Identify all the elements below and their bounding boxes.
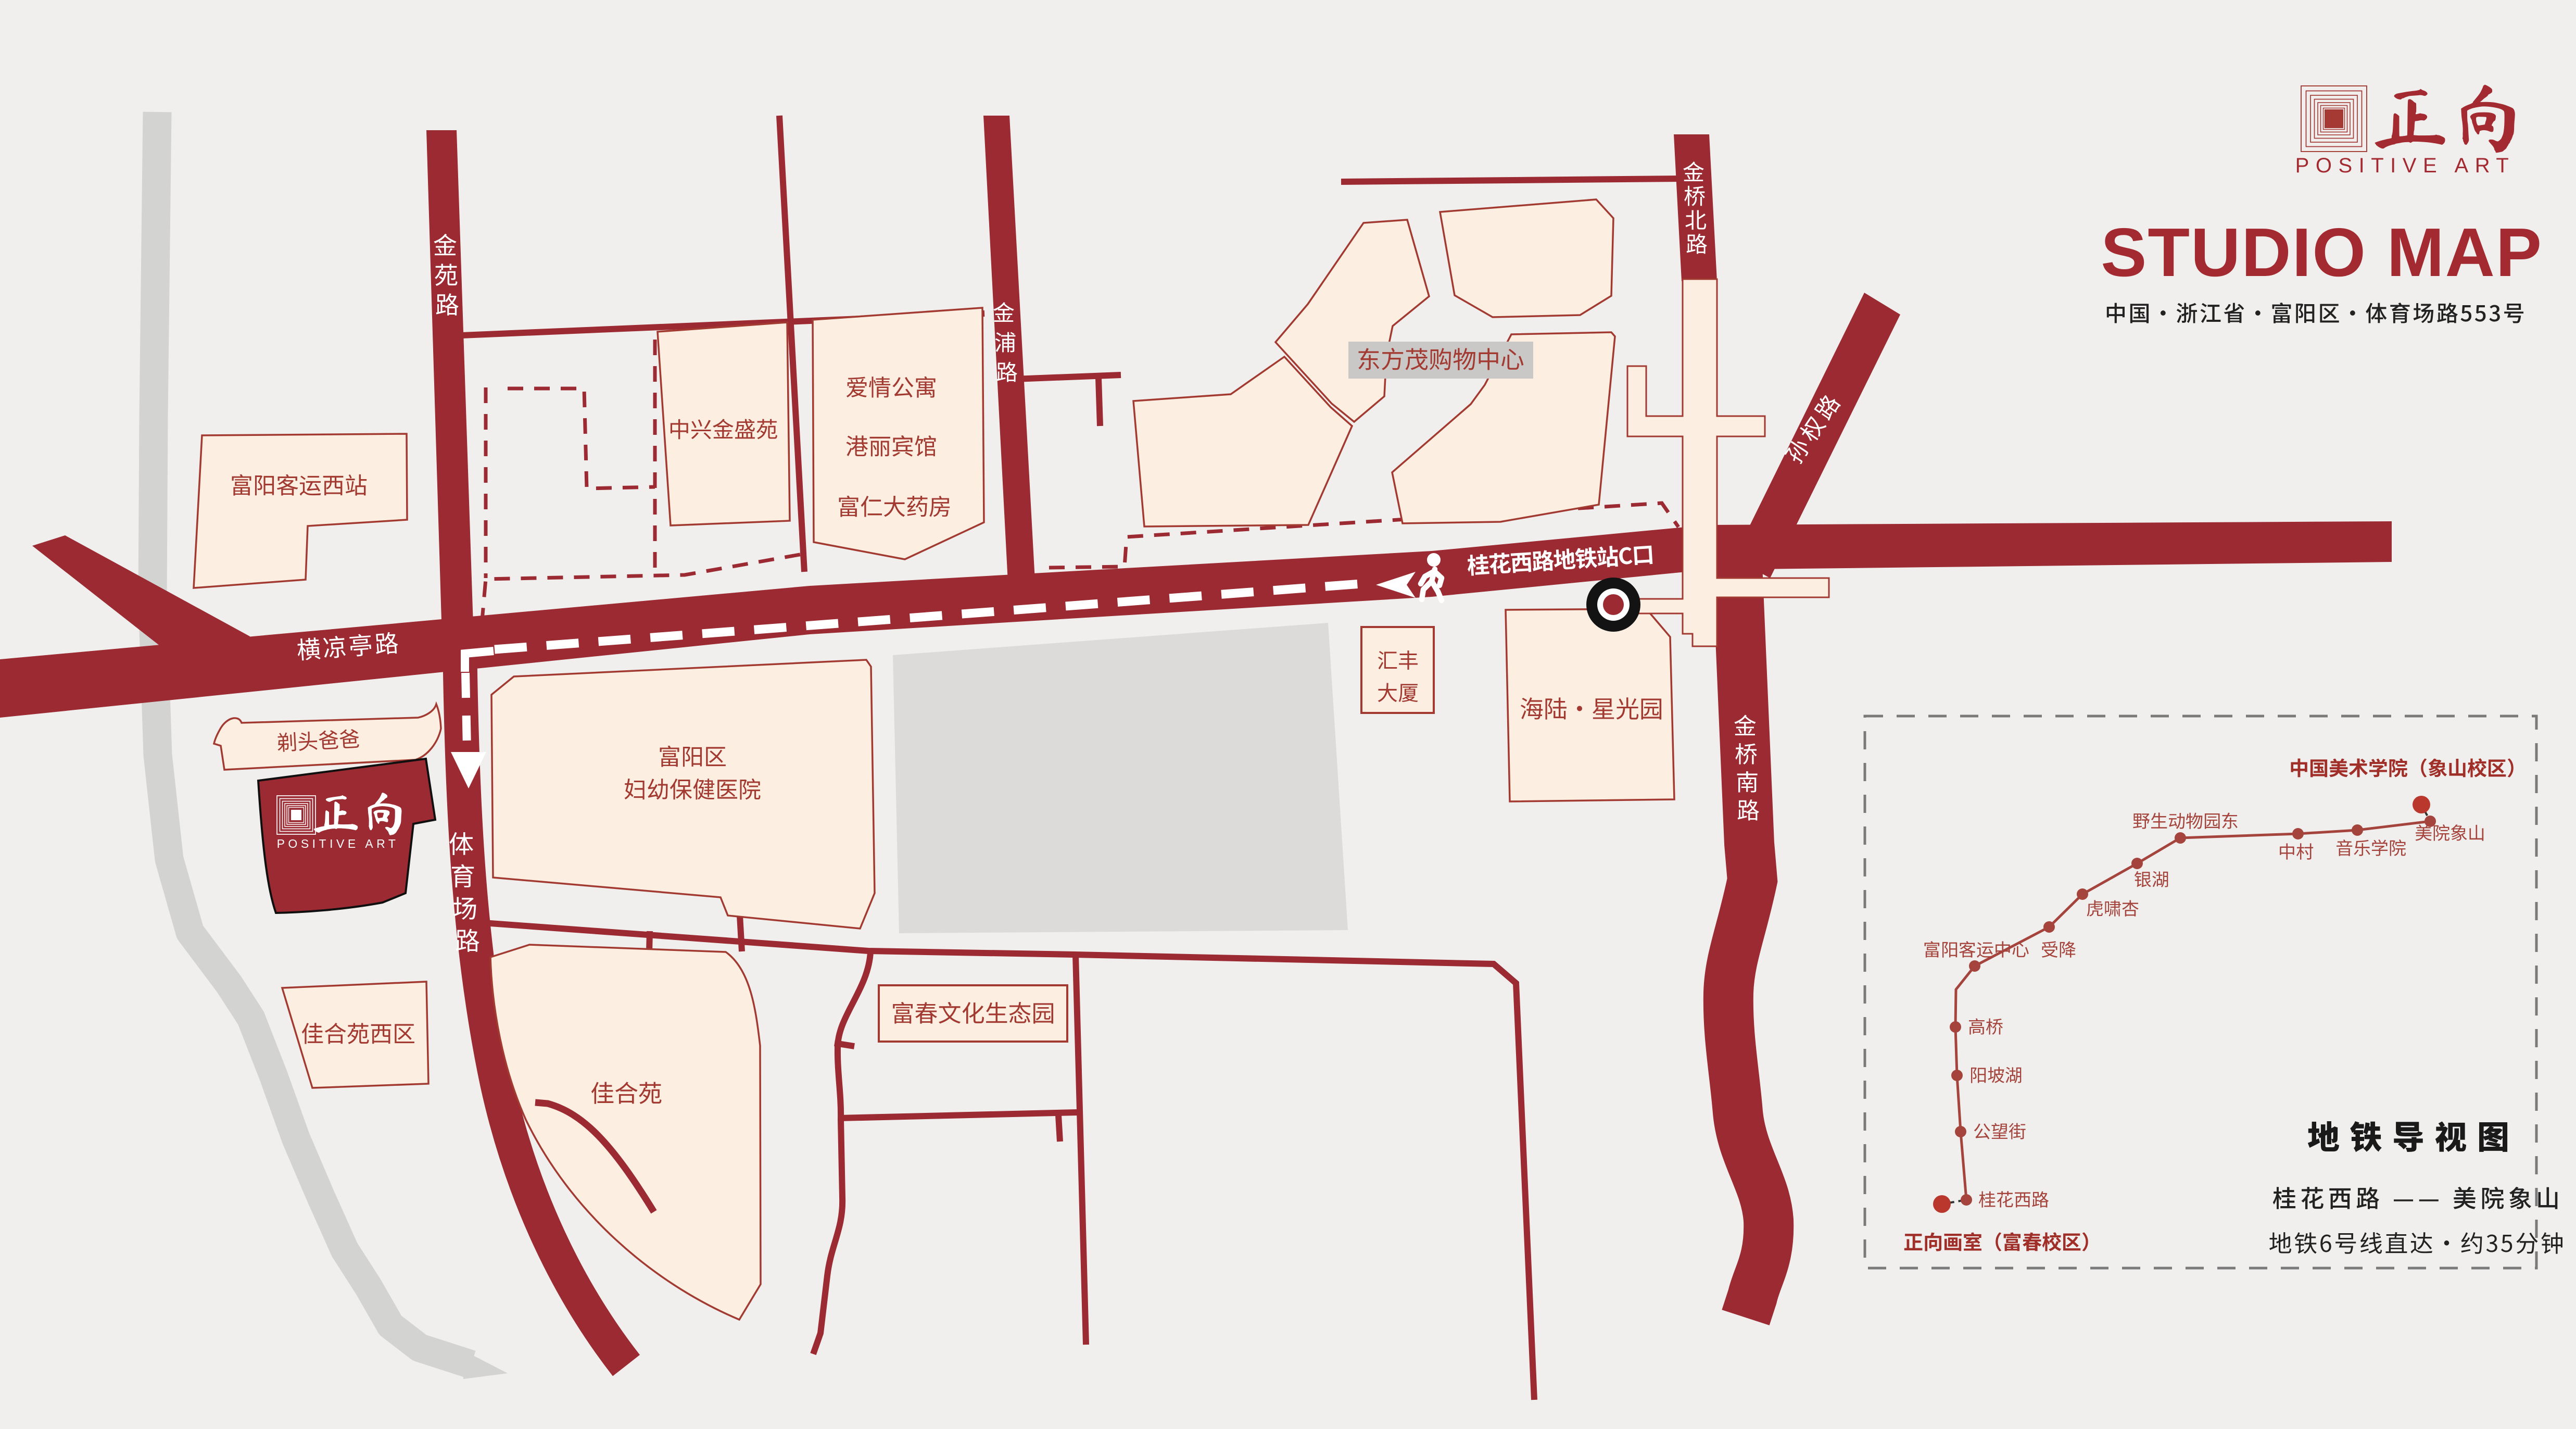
svg-text:虎啸杏: 虎啸杏 [2086,895,2139,920]
svg-text:正向画室（富春校区）: 正向画室（富春校区） [1903,1226,2101,1255]
svg-text:美院象山: 美院象山 [2415,819,2485,845]
svg-text:汇丰: 汇丰 [1377,644,1419,674]
svg-text:中国·浙江省·富阳区·体育场路553号: 中国·浙江省·富阳区·体育场路553号 [2105,296,2527,328]
svg-text:爱情公寓: 爱情公寓 [845,369,937,403]
svg-text:富阳区: 富阳区 [658,738,727,772]
svg-text:路: 路 [435,286,459,321]
svg-text:阳坡湖: 阳坡湖 [1969,1061,2023,1087]
svg-text:金: 金 [993,296,1015,328]
svg-text:富仁大药房: 富仁大药房 [837,488,952,522]
svg-text:妇幼保健医院: 妇幼保健医院 [624,771,761,805]
svg-text:富春文化生态园: 富春文化生态园 [891,995,1055,1029]
svg-text:地铁6号线直达·约35分钟: 地铁6号线直达·约35分钟 [2269,1225,2566,1259]
svg-text:野生动物园东: 野生动物园东 [2132,807,2239,833]
svg-text:中兴金盛苑: 中兴金盛苑 [668,412,778,444]
svg-text:地铁导视图: 地铁导视图 [2307,1111,2516,1158]
svg-text:POSITIVE ART: POSITIVE ART [2295,154,2516,177]
svg-text:路: 路 [455,921,480,957]
svg-text:路: 路 [1686,227,1708,259]
svg-text:剃头爸爸: 剃头爸爸 [276,722,361,757]
svg-text:东方茂购物中心: 东方茂购物中心 [1357,341,1524,375]
svg-text:场: 场 [452,888,477,925]
svg-text:大厦: 大厦 [1377,676,1419,707]
svg-text:富阳客运西站: 富阳客运西站 [230,467,368,500]
svg-text:佳合苑西区: 佳合苑西区 [301,1016,415,1049]
svg-text:路: 路 [996,355,1018,387]
svg-text:银湖: 银湖 [2134,866,2169,891]
svg-text:音乐学院: 音乐学院 [2335,834,2406,860]
svg-text:路: 路 [1737,792,1760,825]
svg-text:STUDIO MAP: STUDIO MAP [2101,214,2543,291]
svg-text:桂花西路: 桂花西路 [1978,1186,2049,1211]
svg-text:佳合苑: 佳合苑 [590,1075,662,1109]
svg-text:正向: 正向 [2371,78,2527,156]
svg-text:高桥: 高桥 [1968,1013,2003,1038]
svg-text:正向: 正向 [311,788,409,837]
svg-text:体: 体 [449,824,474,860]
svg-text:公望街: 公望街 [1973,1118,2026,1143]
svg-text:港丽宾馆: 港丽宾馆 [845,428,937,461]
svg-text:中国美术学院（象山校区）: 中国美术学院（象山校区） [2289,753,2527,781]
svg-text:受降: 受降 [2041,936,2076,961]
svg-text:浦: 浦 [994,325,1016,357]
svg-text:育: 育 [450,856,475,893]
svg-text:海陆·星光园: 海陆·星光园 [1520,691,1663,725]
svg-text:POSITIVE ART: POSITIVE ART [277,837,399,850]
svg-text:中村: 中村 [2278,838,2314,863]
svg-text:富阳客运中心: 富阳客运中心 [1923,936,2029,961]
